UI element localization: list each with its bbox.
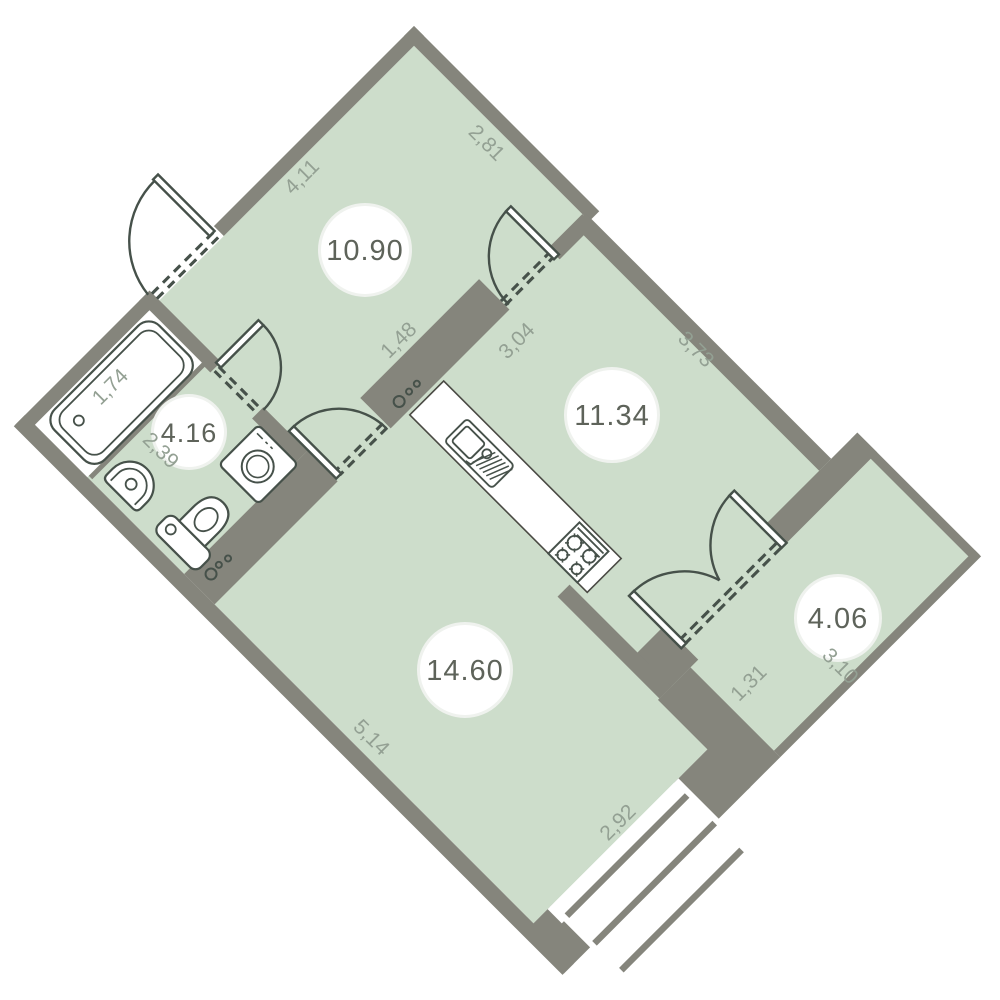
svg-text:11.34: 11.34 xyxy=(574,400,649,432)
svg-text:10.90: 10.90 xyxy=(326,235,404,267)
svg-text:4.06: 4.06 xyxy=(808,603,868,635)
svg-text:14.60: 14.60 xyxy=(426,655,504,687)
